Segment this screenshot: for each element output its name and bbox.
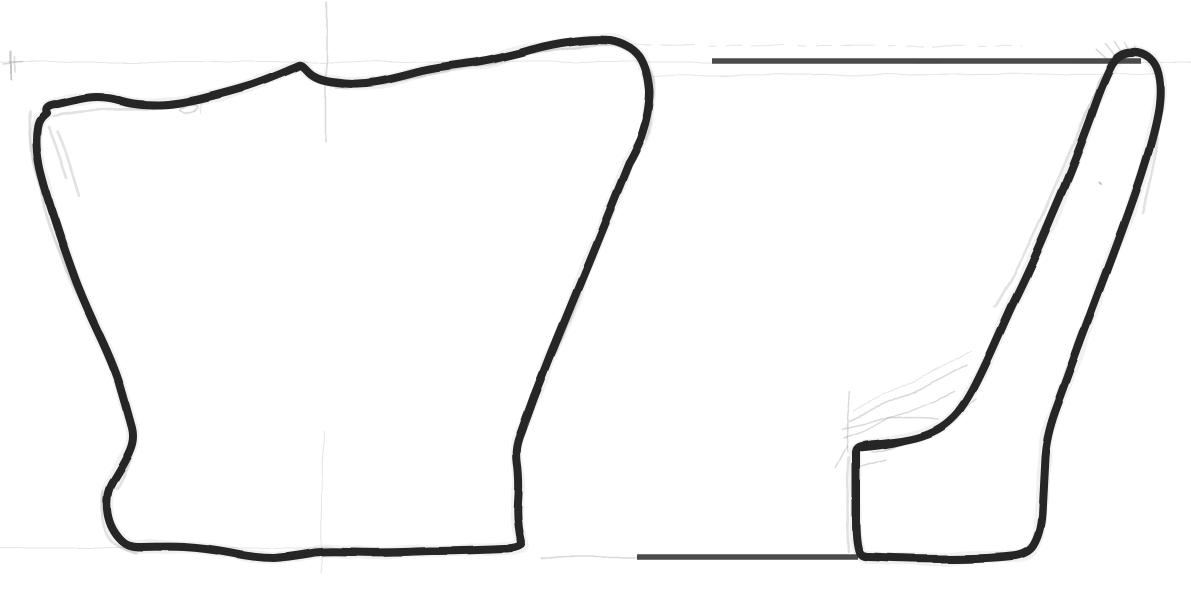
level-guide-layer [637, 61, 1141, 557]
ledge-flare-7 [846, 392, 850, 452]
ghost-section-inner-wall [995, 76, 1101, 307]
graphite-halo-layer [37, 40, 1160, 559]
front-outline-halo [37, 40, 650, 558]
ledge-flare-6 [862, 460, 886, 467]
sherd-front-outline [37, 40, 650, 558]
mid-pencil-line [642, 73, 1155, 76]
pottery-sherd-scan [0, 0, 1191, 590]
corner-scribble-2 [49, 127, 66, 178]
pencil-construction-layer [0, 2, 1191, 574]
pencil-dot [1100, 183, 1102, 185]
upper-dashed-pencil-line [636, 45, 1022, 46]
ledge-flare-8 [836, 446, 847, 468]
sherd-section-outline [856, 52, 1160, 559]
ledge-flare-4 [853, 350, 970, 410]
ink-layer [37, 40, 1160, 559]
ledge-flare-3 [848, 364, 966, 420]
sherd-drawing-canvas [0, 0, 1191, 590]
ghost-section-foot-left [848, 458, 850, 552]
